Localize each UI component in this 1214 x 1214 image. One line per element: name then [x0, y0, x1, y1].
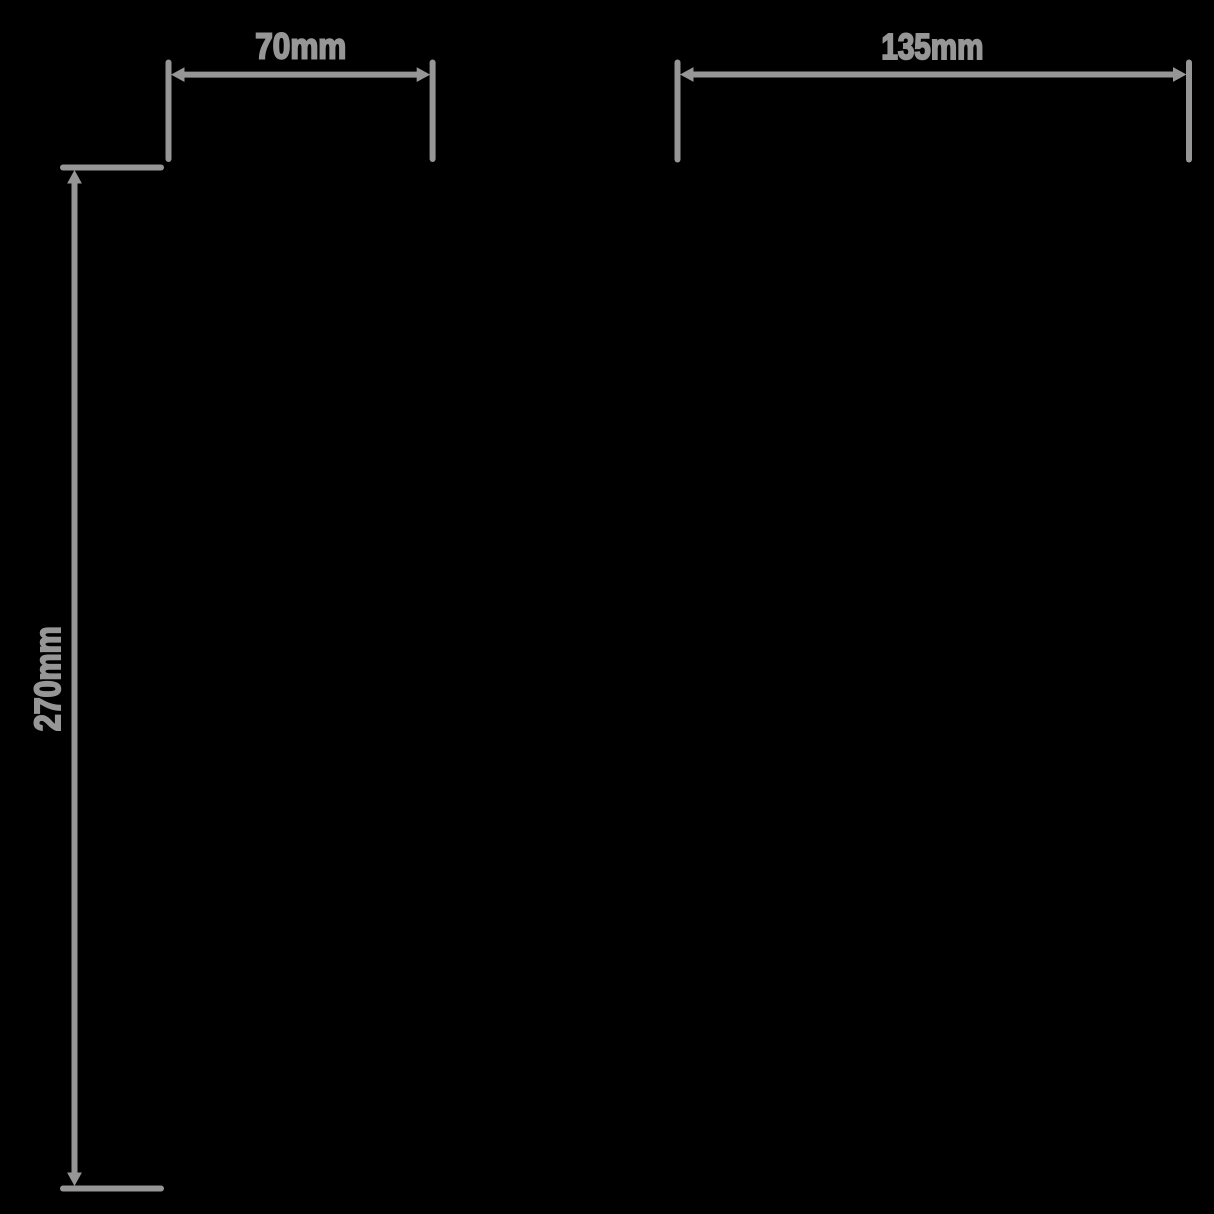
svg-text:270mm: 270mm — [27, 626, 68, 731]
svg-text:135mm: 135mm — [881, 26, 983, 67]
svg-text:70mm: 70mm — [255, 26, 346, 67]
